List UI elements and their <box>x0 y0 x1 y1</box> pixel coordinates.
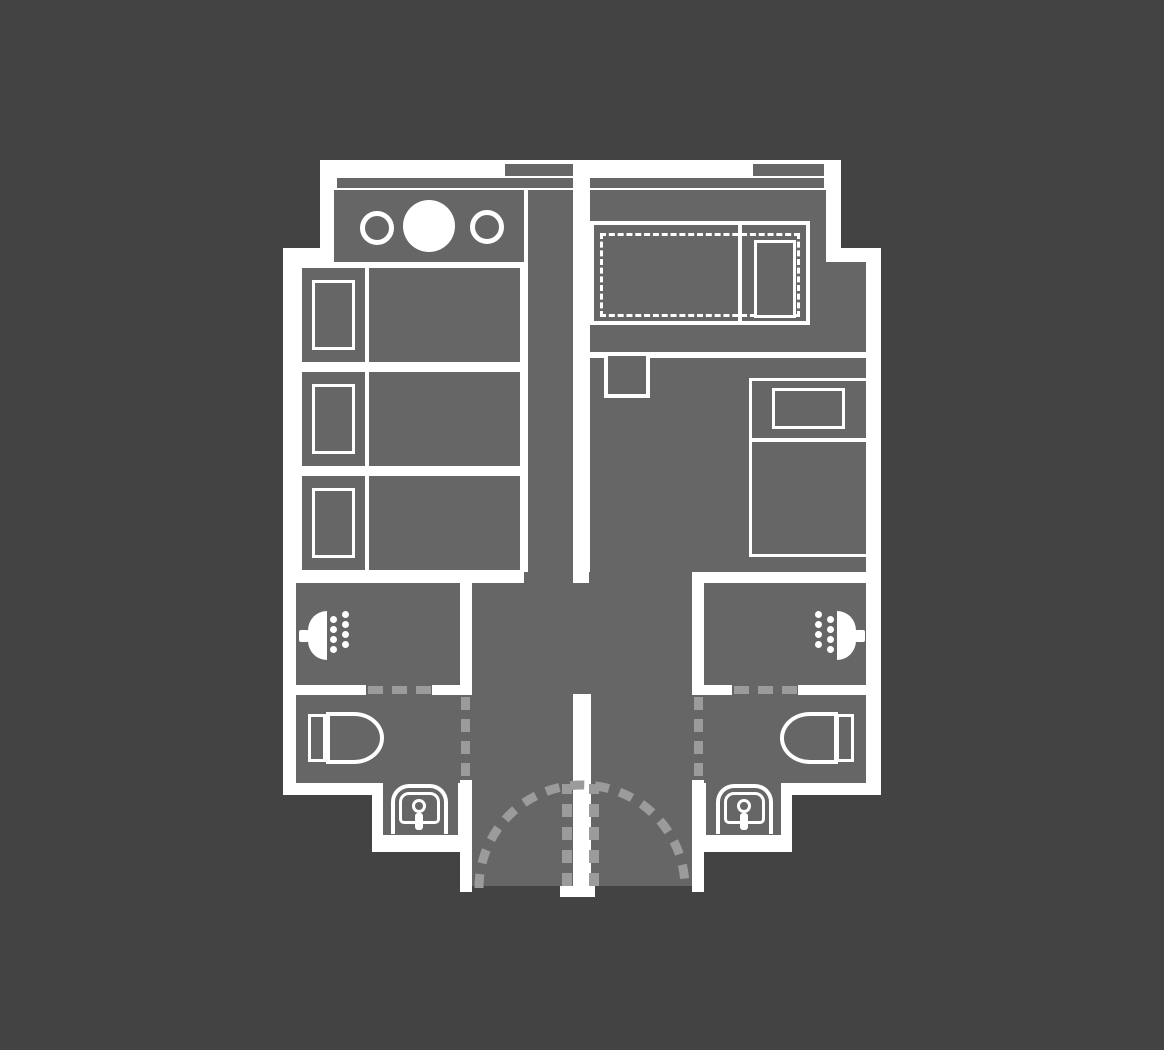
wall-entry-right <box>692 780 704 892</box>
doorway-marker <box>694 741 703 754</box>
washbasin-tap-icon <box>415 813 423 830</box>
entry-hall-right-channel <box>591 694 692 886</box>
sliding-door-marker <box>392 686 407 694</box>
window-band-right <box>590 178 824 188</box>
water-drop-icon <box>330 636 337 643</box>
pillow <box>312 280 355 350</box>
water-drop-icon <box>330 616 337 623</box>
doorway-marker <box>461 763 470 776</box>
doorway-marker <box>694 697 703 710</box>
bed-head-divider <box>752 438 866 442</box>
water-drop-icon <box>342 611 349 618</box>
bed-head-divider <box>365 268 369 362</box>
fold-out-bed <box>590 221 810 325</box>
wall-entry-left <box>460 780 472 892</box>
kitchen-sink-icon <box>403 200 455 252</box>
hallway-strip-left <box>528 190 573 578</box>
water-drop-icon <box>815 631 822 638</box>
pillow <box>772 388 845 429</box>
doorway-marker <box>461 741 470 754</box>
doorway-marker <box>461 719 470 732</box>
water-drop-icon <box>330 646 337 653</box>
washbasin-drain-icon <box>412 799 426 813</box>
closet <box>604 352 650 398</box>
sliding-door-marker <box>416 686 431 694</box>
washbasin-tap-icon <box>740 813 748 830</box>
wall-central-lower <box>573 694 591 881</box>
hall-pass-right <box>589 572 692 583</box>
doorway-marker <box>694 763 703 776</box>
pillow <box>754 240 796 318</box>
washbasin-drain-icon <box>737 799 751 813</box>
shower-icon <box>855 630 865 642</box>
pillow <box>312 488 355 558</box>
water-drop-icon <box>342 621 349 628</box>
water-drop-icon <box>815 641 822 648</box>
water-drop-icon <box>815 621 822 628</box>
hob-burner-icon <box>360 211 394 245</box>
water-drop-icon <box>827 626 834 633</box>
toilet-icon <box>780 712 838 764</box>
window-right-wing <box>753 164 824 176</box>
entry-hall-left-channel <box>472 694 573 886</box>
single-bed-1 <box>302 268 520 362</box>
toilet-icon <box>308 714 326 762</box>
entry-hall-upper <box>472 583 692 694</box>
water-drop-icon <box>330 626 337 633</box>
doorway-marker <box>461 697 470 710</box>
hall-pass-left <box>524 572 573 583</box>
bed-head-divider <box>365 476 369 570</box>
water-drop-icon <box>342 641 349 648</box>
single-bed-2 <box>302 372 520 466</box>
water-drop-icon <box>815 611 822 618</box>
water-drop-icon <box>827 646 834 653</box>
water-drop-icon <box>342 631 349 638</box>
bed-head-divider <box>365 372 369 466</box>
sliding-door-marker <box>782 686 797 694</box>
single-bed-3 <box>302 476 520 570</box>
window-left-wing <box>505 164 573 176</box>
toilet-icon <box>326 712 384 764</box>
fold-out-bed-divider <box>738 225 742 321</box>
doorway-marker <box>694 719 703 732</box>
sliding-door-marker <box>758 686 773 694</box>
floor-plan-canvas <box>0 0 1164 1050</box>
double-bed <box>749 378 866 557</box>
window-band-left <box>337 178 573 188</box>
toilet-icon <box>836 714 854 762</box>
pillow <box>312 384 355 454</box>
hob-burner-icon <box>470 210 504 244</box>
sliding-door-marker <box>368 686 383 694</box>
sliding-door-marker <box>734 686 749 694</box>
water-drop-icon <box>827 636 834 643</box>
water-drop-icon <box>827 616 834 623</box>
